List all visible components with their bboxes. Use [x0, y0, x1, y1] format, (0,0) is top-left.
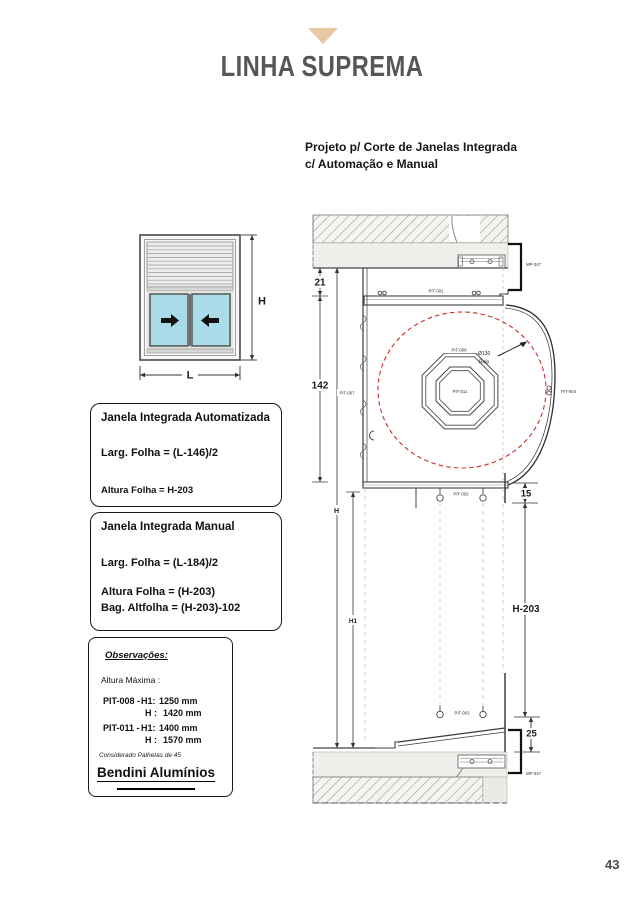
- dim-frame-height: H-203: [512, 604, 540, 615]
- label-diameter: Ø130: [478, 351, 490, 357]
- page-title: LINHA SUPREMA: [58, 51, 586, 84]
- auto-height-formula: Altura Folha = H-203: [101, 485, 193, 496]
- bottom-wall-section: [313, 752, 507, 803]
- label-top-profile: PIT-001: [428, 289, 444, 294]
- manual-box-title: Janela Integrada Manual: [101, 521, 235, 533]
- bottom-profile: [363, 473, 508, 508]
- drawing-heading: Projeto p/ Corte de Janelas Integrada c/…: [305, 139, 635, 173]
- top-wall-section: [313, 215, 508, 268]
- auto-width-formula: Larg. Folha = (L-146)/2: [101, 447, 218, 459]
- height-dimension: [241, 235, 257, 360]
- h1-value: 1400 mm: [159, 723, 198, 733]
- note-row-h: H :1420 mm: [145, 708, 202, 718]
- manual-height-formula: Altura Folha = (H-203): [101, 586, 215, 598]
- note-row-h1: H1:1250 mm: [141, 696, 198, 706]
- label-left-profile: PIT-007: [339, 391, 355, 396]
- dimension-lines: [312, 268, 540, 752]
- label-side-profile: PIT-004: [561, 389, 577, 394]
- motor-mount: [458, 255, 505, 268]
- h1-label: H1:: [141, 723, 159, 733]
- label-sill-profile: PIT-003: [454, 711, 470, 716]
- notes-subtitle: Altura Máxima :: [101, 675, 160, 685]
- drawing-heading-line1: Projeto p/ Corte de Janelas Integrada: [305, 139, 635, 156]
- dim-top-gap: 21: [314, 278, 326, 289]
- technical-drawing: 21 142 H H1 15 H-203 25 PIT-001 PIT-007 …: [300, 195, 644, 840]
- dimension-arrows: [318, 268, 533, 752]
- h-label: H :: [145, 735, 163, 745]
- manual-width-formula: Larg. Folha = (L-184)/2: [101, 557, 218, 569]
- label-backgrounds: [309, 276, 545, 739]
- auto-box-title: Janela Integrada Automatizada: [101, 412, 270, 424]
- notes-box: Observações: Altura Máxima : PIT-008 - H…: [88, 637, 233, 797]
- height-dim-label: H: [258, 296, 266, 308]
- window-schematic: H L: [125, 225, 275, 390]
- dim-sill-gap: 15: [521, 489, 532, 500]
- manual-bag-formula: Bag. Altfolha = (H-203)-102: [101, 602, 240, 614]
- dim-shutter-box: 142: [312, 381, 329, 392]
- section-marker-triangle-icon: [308, 28, 338, 44]
- label-bracket-top: MP-347: [526, 262, 542, 267]
- label-bracket-bottom: MP-347: [526, 771, 542, 776]
- note-row-code: PIT-011 -: [103, 723, 140, 733]
- shutter-box: [147, 242, 233, 291]
- dim-inner-height: H1: [349, 618, 358, 625]
- page-number: 43: [605, 857, 619, 872]
- h1-label: H1:: [141, 696, 159, 706]
- dim-bottom-gap: 25: [526, 729, 537, 740]
- note-row-code: PIT-008 -: [103, 696, 140, 706]
- side-curved-profile: [505, 305, 555, 485]
- note-row-h1: H1:1400 mm: [141, 723, 198, 733]
- manual-window-box: Janela Integrada Manual Larg. Folha = (L…: [90, 512, 282, 631]
- h1-value: 1250 mm: [159, 696, 198, 706]
- automated-window-box: Janela Integrada Automatizada Larg. Folh…: [90, 403, 282, 507]
- label-bottom-profile: PIT-002: [453, 492, 469, 497]
- drawing-heading-line2: c/ Automação e Manual: [305, 156, 635, 173]
- dim-total-height: H: [334, 508, 339, 515]
- track-lines: [365, 488, 503, 745]
- brand-underline: [117, 788, 195, 790]
- wall-bracket-bottom: [508, 730, 521, 773]
- notes-footnote: Considerado Palhetas de 45: [99, 752, 181, 759]
- catalog-page: LINHA SUPREMA Projeto p/ Corte de Janela…: [0, 0, 644, 900]
- brand-name: Bendini Alumínios: [97, 765, 215, 782]
- h-value: 1420 mm: [163, 708, 202, 718]
- label-shutter-slat: PIT-008: [451, 348, 467, 353]
- h-label: H :: [145, 708, 163, 718]
- notes-title: Observações:: [105, 650, 168, 661]
- width-dim-label: L: [187, 370, 194, 382]
- label-roll: Rolo: [479, 360, 490, 366]
- wall-bracket-top: [508, 244, 521, 290]
- note-row-h: H :1570 mm: [145, 735, 202, 745]
- label-axle: PIT-011: [453, 389, 468, 394]
- h-value: 1570 mm: [163, 735, 202, 745]
